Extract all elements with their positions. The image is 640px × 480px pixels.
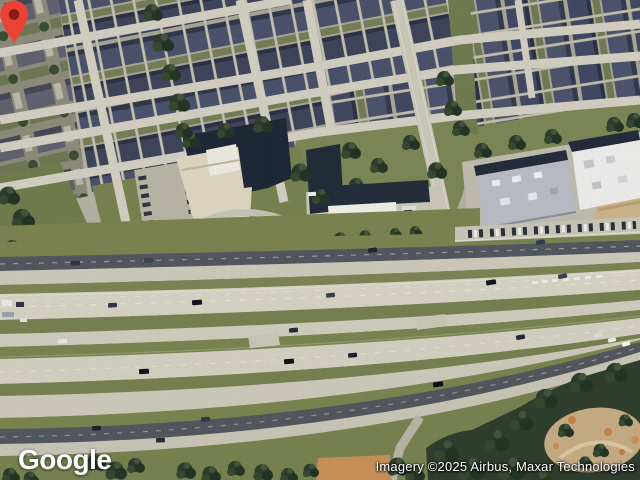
- imagery-attribution: Imagery ©2025 Airbus, Maxar Technologies: [376, 459, 635, 474]
- pin-body[interactable]: [0, 1, 28, 43]
- google-logo[interactable]: Google: [18, 444, 111, 476]
- location-marker-pin[interactable]: [0, 0, 28, 43]
- imagery-grain: [0, 0, 640, 480]
- map-viewport[interactable]: Google Imagery ©2025 Airbus, Maxar Techn…: [0, 0, 640, 480]
- satellite-imagery: [0, 0, 640, 480]
- pin-dot: [9, 9, 20, 20]
